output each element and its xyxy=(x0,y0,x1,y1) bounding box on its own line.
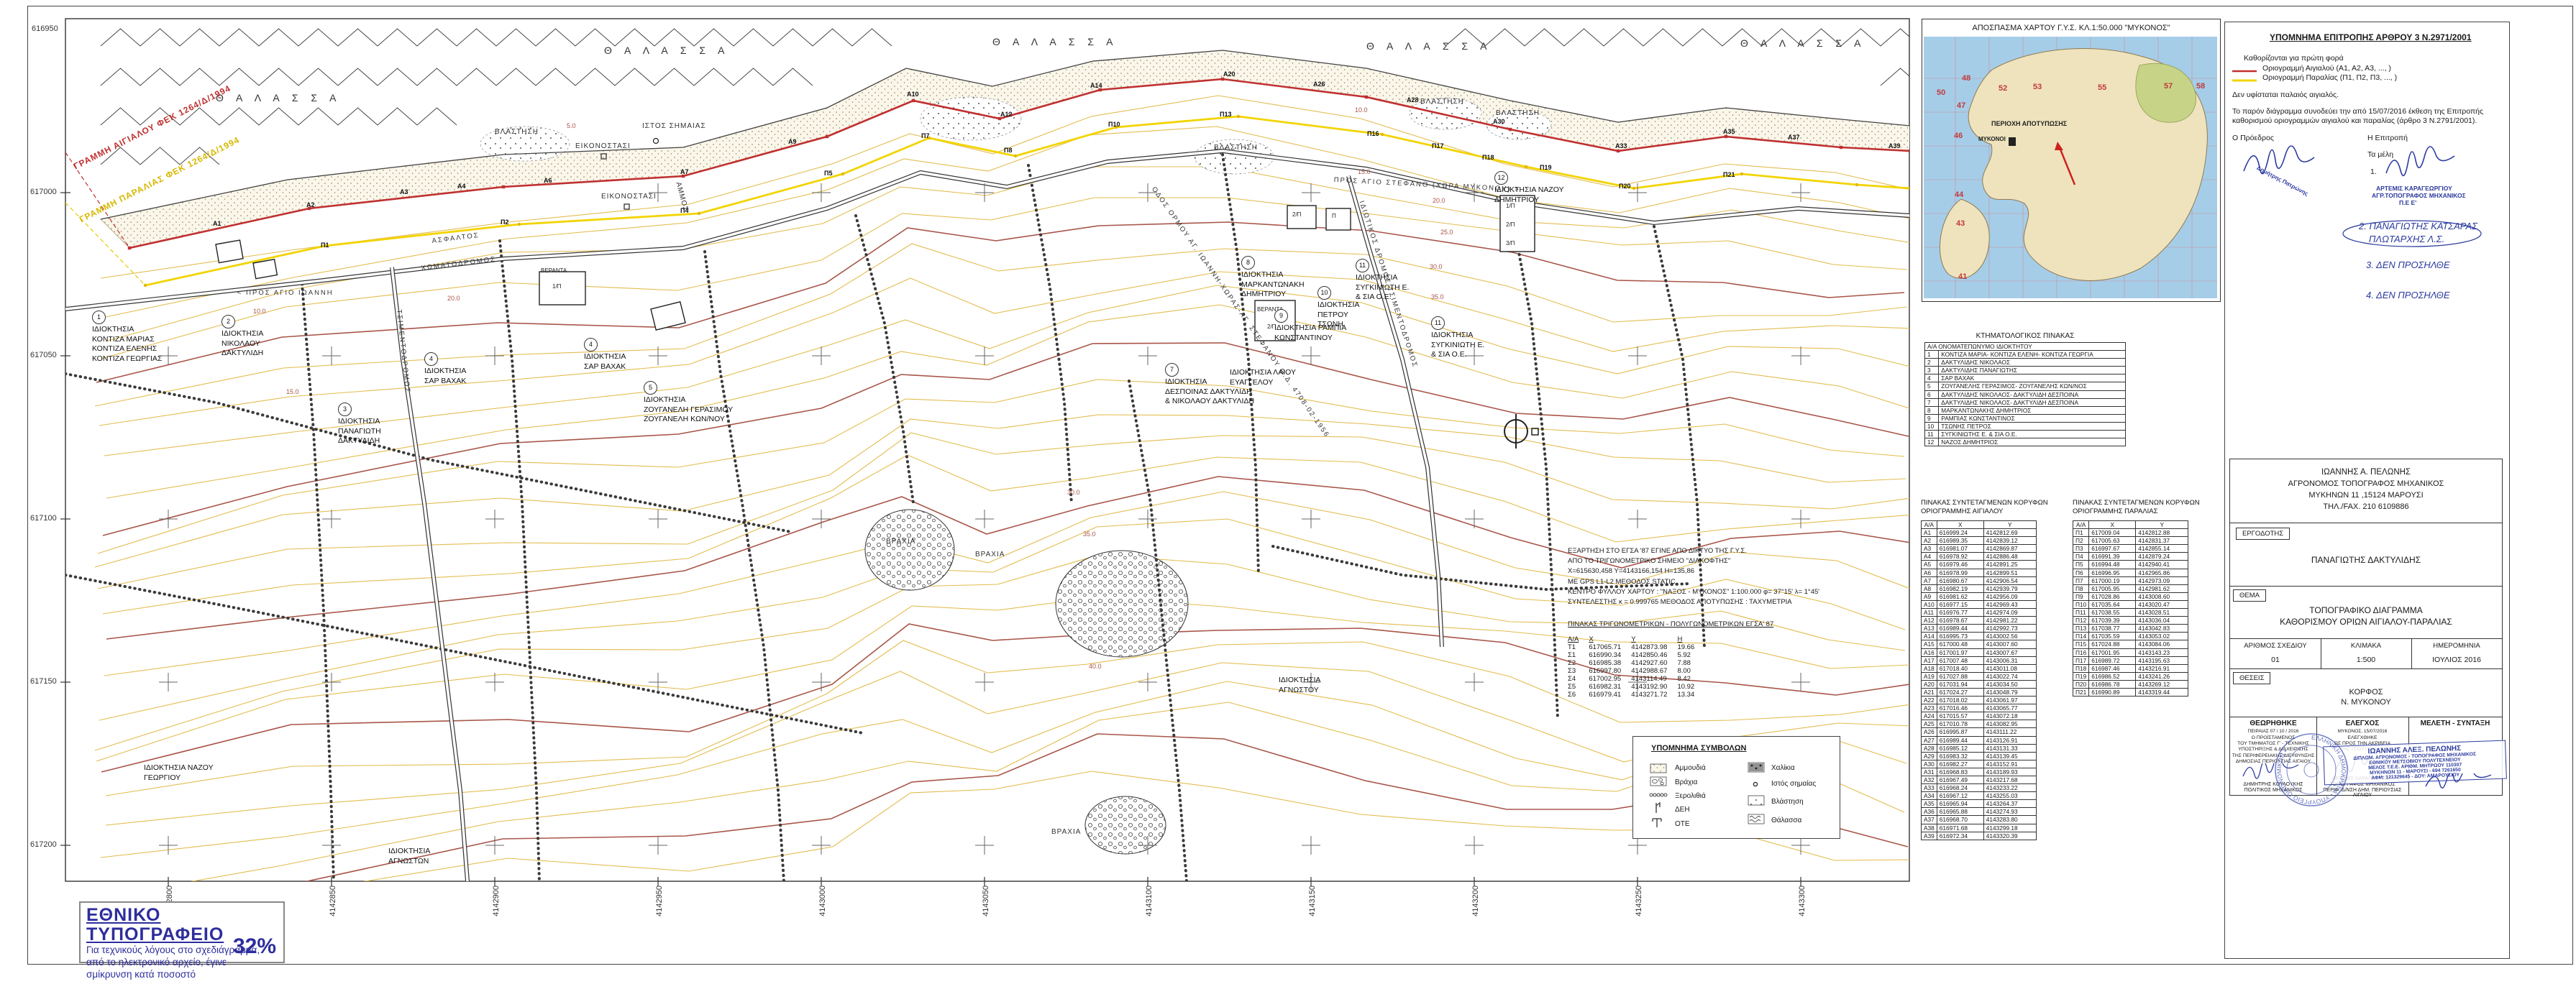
table-cell: 616997.80 xyxy=(1589,667,1631,675)
table-row: Π1617009.044142812.88 xyxy=(2073,529,2188,537)
table-cell: Α29 xyxy=(1922,752,1937,760)
table-cell: 616978.67 xyxy=(1937,617,1983,625)
table-row: Π7617000.194142973.09 xyxy=(2073,576,2188,584)
legend-item-vegetation: Βλάστηση xyxy=(1771,798,1804,806)
table-cell: 9 xyxy=(1925,414,1939,422)
table-cell: 4142886.48 xyxy=(1983,553,2036,561)
drawing-no: 01 xyxy=(2230,656,2321,664)
table-cell: Σ5 xyxy=(1568,683,1589,691)
table-row: Α15617000.484143007.60 xyxy=(1922,640,2037,648)
inset-grid-number: 43 xyxy=(1956,219,1965,228)
table-cell: 13.34 xyxy=(1677,691,1704,699)
table-row: Α28616985.124143131.33 xyxy=(1922,744,2037,752)
table-row: Α3616981.074142869.87 xyxy=(1922,545,2037,553)
table-cell: 617024.27 xyxy=(1937,688,1983,696)
table-row: Π9617028.864143008.60 xyxy=(2073,592,2188,600)
table-cell: 616989.44 xyxy=(1937,736,1983,744)
table-cell: 4142973.09 xyxy=(2136,576,2188,584)
table-cell: Α34 xyxy=(1922,792,1937,800)
table-row: 8ΜΑΡΚΑΝΤΩΝΑΚΗΣ ΔΗΜΗΤΡΙΟΣ xyxy=(1925,406,2126,414)
survey-note: ΕΞΑΡΤΗΣΗ ΣΤΟ ΕΓΣΑ '87 ΕΓΙΝΕ ΑΠΟ ΔΙΚΤΥΟ Τ… xyxy=(1568,546,1819,607)
table-row: Α26616995.874143111.22 xyxy=(1922,728,2037,736)
table-cell: Α14 xyxy=(1922,633,1937,640)
table-cell: 617024.88 xyxy=(2089,640,2136,648)
table-cell: Α11 xyxy=(1922,609,1937,617)
table-cell: Π18 xyxy=(2073,664,2089,672)
table-row: Π18616987.464143216.91 xyxy=(2073,664,2188,672)
table-cell: Α28 xyxy=(1922,744,1937,752)
table-cell: 11 xyxy=(1925,431,1939,438)
table-cell: Π16 xyxy=(2073,648,2089,656)
table-cell: 4142879.24 xyxy=(2136,553,2188,561)
table-cell: Α27 xyxy=(1922,736,1937,744)
table-cell: 4142899.51 xyxy=(1983,569,2036,576)
scale-label: ΚΛΙΜΑΚΑ xyxy=(2321,642,2411,650)
table-row: Π16617001.954143143.23 xyxy=(2073,648,2188,656)
table-cell: 617000.48 xyxy=(1937,640,1983,648)
table-cell: 617038.55 xyxy=(2089,609,2136,617)
table-cell: 616972.34 xyxy=(1937,832,1983,840)
table-cell: 616971.68 xyxy=(1937,824,1983,832)
table-cell: Π20 xyxy=(2073,680,2089,688)
table-cell: 617015.57 xyxy=(1937,712,1983,720)
table-cell: 4142850.46 xyxy=(1631,651,1677,659)
flag-pole-icon xyxy=(654,139,659,144)
table-cell: Π12 xyxy=(2073,617,2089,625)
table-cell: 4143299.18 xyxy=(1983,824,2036,832)
table-cell: 616968.24 xyxy=(1937,784,1983,792)
table-cell: 4142855.14 xyxy=(2136,545,2188,553)
table-cell: Α39 xyxy=(1922,832,1937,840)
table-cell: 4143143.23 xyxy=(2136,648,2188,656)
frame-coordinate: 4143000 xyxy=(818,886,827,916)
table-row: Α10616977.154142969.43 xyxy=(1922,600,2037,608)
table-cell: 616978.92 xyxy=(1937,553,1983,561)
table-cell: 616983.32 xyxy=(1937,752,1983,760)
topographic-diagram-sheet: { "map": { "corner_coord": "616950", "le… xyxy=(0,0,2576,1002)
table-row: Α31616968.834143189.93 xyxy=(1922,768,2037,776)
table-cell: 4143028.51 xyxy=(2136,609,2188,617)
member1-stamp: ΑΡΤΕΜΙΣ ΚΑΡΑΓΕΩΡΓΙΟΥ xyxy=(2376,185,2452,192)
table-cell: 4143320.39 xyxy=(1983,832,2036,840)
inset-grid-number: 52 xyxy=(1999,84,2007,93)
paralia-coordinates-table: Α/Α Χ Υ Π1617009.044142812.88Π2617005.63… xyxy=(2073,520,2188,697)
table-row: Α6616978.994142899.51 xyxy=(1922,569,2037,576)
table-cell: 4143002.56 xyxy=(1983,633,2036,640)
table-cell: 617028.86 xyxy=(2089,592,2136,600)
table-cell: 616999.24 xyxy=(1937,529,1983,537)
table-cell: Α4 xyxy=(1922,553,1937,561)
table-cell: 617038.77 xyxy=(2089,625,2136,633)
table-cell: 4143034.50 xyxy=(1983,680,2036,688)
table-row: 5ΖΟΥΓΑΝΕΛΗΣ ΓΕΡΑΣΙΜΟΣ- ΖΟΥΓΑΝΕΛΗΣ ΚΩΝ/ΝΟ… xyxy=(1925,382,2126,390)
table-cell: 4143264.37 xyxy=(1983,800,2036,808)
table-row: Α16617001.974143007.67 xyxy=(1922,648,2037,656)
table-cell: 616997.67 xyxy=(2089,545,2136,553)
table-cell: 4142906.54 xyxy=(1983,576,2036,584)
table-row: Α23617016.464143065.77 xyxy=(1922,704,2037,712)
survey-note-line: ΕΞΑΡΤΗΣΗ ΣΤΟ ΕΓΣΑ '87 ΕΓΙΝΕ ΑΠΟ ΔΙΚΤΥΟ Τ… xyxy=(1568,546,1819,556)
table-cell: 4143007.60 xyxy=(1983,640,2036,648)
column-header: Η xyxy=(1677,635,1704,643)
client-label: ΕΡΓΟΔΟΤΗΣ xyxy=(2236,528,2290,540)
table-cell: 616986.52 xyxy=(2089,672,2136,680)
table-cell: Π10 xyxy=(2073,600,2089,608)
table-cell: 616989.44 xyxy=(1937,625,1983,633)
survey-note-line: ΣΥΝΤΕΛΕΣΤΗΣ κ = 0.999765 ΜΕΘΟΔΟΣ ΑΠΟΤΥΠΩ… xyxy=(1568,597,1819,607)
table-row: Α24617015.574143072.18 xyxy=(1922,712,2037,720)
table-cell: Α13 xyxy=(1922,625,1937,633)
table-cell: Π14 xyxy=(2073,633,2089,640)
column-header: Α/Α xyxy=(2073,521,2089,529)
table-cell: 4143065.77 xyxy=(1983,704,2036,712)
frame-coordinate: 617200 xyxy=(30,840,57,849)
table-cell: 616967.12 xyxy=(1937,792,1983,800)
table-cell: 616965.88 xyxy=(1937,808,1983,816)
table-row: Α35616965.944143264.37 xyxy=(1922,800,2037,808)
column-header: Υ xyxy=(1983,521,2036,529)
table-cell: 4142956.09 xyxy=(1983,592,2036,600)
location-line1: ΚΟΡΦΟΣ xyxy=(2230,688,2502,697)
table-row: 9ΡΑΜΠΙΑΣ ΚΩΝΣΤΑΝΤΙΝΟΣ xyxy=(1925,414,2126,422)
table-row: Α9616981.624142956.09 xyxy=(1922,592,2037,600)
table-cell: 4143048.79 xyxy=(1983,688,2036,696)
north-symbol-icon xyxy=(1504,414,1538,449)
table-cell: Α20 xyxy=(1922,680,1937,688)
committee-legend-yellow: Οριογραμμή Παραλίας (Π1, Π2, Π3, ..., ) xyxy=(2262,73,2397,82)
table-cell: Α38 xyxy=(1922,824,1937,832)
frame-coordinate: 4143250 xyxy=(1635,886,1643,916)
table-cell: ΝΑΖΟΣ ΔΗΜΗΤΡΙΟΣ xyxy=(1939,438,2126,446)
table-cell: 4143111.22 xyxy=(1983,728,2036,736)
inset-grid-number: 55 xyxy=(2098,83,2106,92)
table-cell: Π1 xyxy=(2073,529,2089,537)
table-cell: 616982.19 xyxy=(1937,584,1983,592)
table-cell: 7.88 xyxy=(1677,659,1704,667)
table-cell: 4142940.41 xyxy=(2136,561,2188,569)
table-row: Α37616968.704143283.80 xyxy=(1922,816,2037,824)
table-cell: 4143139.45 xyxy=(1983,752,2036,760)
table-row: Π4616991.394142879.24 xyxy=(2073,553,2188,561)
firm-profession: ΑΓΡΟΝΟΜΟΣ ΤΟΠΟΓΡΑΦΟΣ ΜΗΧΑΝΙΚΟΣ xyxy=(2230,479,2502,488)
table-cell: 616968.83 xyxy=(1937,768,1983,776)
table-header-row: Α/Α Χ Υ xyxy=(1922,521,2037,529)
table-cell: 617005.95 xyxy=(2089,584,2136,592)
member1-stamp-grade: Π.Ε Ε' xyxy=(2399,199,2416,206)
table-cell: ΔΑΚΤΥΛΙΔΗΣ ΝΙΚΟΛΑΟΣ xyxy=(1939,359,2126,367)
cadastral-table-title: ΚΤΗΜΑΤΟΛΟΓΙΚΟΣ ΠΙΝΑΚΑΣ xyxy=(1924,332,2126,340)
table-cell: 4143131.33 xyxy=(1983,744,2036,752)
date-label: ΗΜΕΡΟΜΗΝΙΑ xyxy=(2411,642,2502,650)
table-cell: 4142992.73 xyxy=(1983,625,2036,633)
frame-coordinate: 4143200 xyxy=(1471,886,1480,916)
table-cell: 4143217.68 xyxy=(1983,776,2036,784)
table-cell: 616982.27 xyxy=(1937,760,1983,768)
table-row: Π5616994.484142940.41 xyxy=(2073,561,2188,569)
table-cell: Α18 xyxy=(1922,664,1937,672)
table-cell: 4142939.79 xyxy=(1983,584,2036,592)
table-row: Π21616990.894143319.44 xyxy=(2073,688,2188,696)
table-cell: 8.42 xyxy=(1677,675,1704,683)
table-cell: 4 xyxy=(1925,374,1939,382)
table-cell: 616982.31 xyxy=(1589,683,1631,691)
table-cell: 12 xyxy=(1925,438,1939,446)
table-cell: 10.92 xyxy=(1677,683,1704,691)
column-header: Χ xyxy=(2089,521,2136,529)
trig-table-title: ΠΙΝΑΚΑΣ ΤΡΙΓΩΝΟΜΕΤΡΙΚΩΝ - ΠΟΛΥΓΩΝΟΜΕΤΡΙΚ… xyxy=(1568,620,1773,630)
trig-table: Α/Α Χ Υ Η Τ1617065.714142873.9819.66Σ161… xyxy=(1568,635,1704,699)
locations-label: ΘΕΣΕΙΣ xyxy=(2233,672,2270,684)
table-cell: 617018.02 xyxy=(1937,697,1983,704)
table-cell: Α10 xyxy=(1922,600,1937,608)
legend-item-drystone: Ξερολιθιά xyxy=(1675,792,1706,800)
table-row: Σ1616990.344142850.465.92 xyxy=(1568,651,1704,659)
table-cell: 4143233.22 xyxy=(1983,784,2036,792)
table-cell: 4143036.04 xyxy=(2136,617,2188,625)
table-cell: Π11 xyxy=(2073,609,2089,617)
subject-line2: ΚΑΘΟΡΙΣΜΟΥ ΟΡΙΩΝ ΑΙΓΙΑΛΟΥ-ΠΑΡΑΛΙΑΣ xyxy=(2230,617,2502,627)
table-cell: 616965.94 xyxy=(1937,800,1983,808)
table-cell: 4142812.88 xyxy=(2136,529,2188,537)
table-cell: 4143241.26 xyxy=(2136,672,2188,680)
table-cell: 617018.40 xyxy=(1937,664,1983,672)
table-row: Α7616980.674142906.54 xyxy=(1922,576,2037,584)
table-cell: 4143042.83 xyxy=(2136,625,2188,633)
table-row: Α38616971.684143299.18 xyxy=(1922,824,2037,832)
table-cell: 19.66 xyxy=(1677,643,1704,651)
table-row: 6ΔΑΚΤΥΛΙΔΗΣ ΝΙΚΟΛΑΟΣ- ΔΑΚΤΥΛΙΔΗ ΔΕΣΠΟΙΝΑ xyxy=(1925,390,2126,398)
aigialos-table-title: ΠΙΝΑΚΑΣ ΣΥΝΤΕΤΑΓΜΕΝΩΝ ΚΟΡΥΦΩΝ xyxy=(1921,499,2048,507)
frame-coordinate: 617150 xyxy=(30,677,57,686)
member2-signature xyxy=(2340,218,2484,249)
table-header-row: Α/Α Χ Υ Η xyxy=(1568,635,1704,643)
drawing-no-label: ΑΡΙΘΜΟΣ ΣΧΕΔΙΟΥ xyxy=(2230,642,2321,650)
table-cell: 4143283.80 xyxy=(1983,816,2036,824)
table-row: Α36616965.884143274.93 xyxy=(1922,808,2037,816)
table-cell: 4143319.44 xyxy=(2136,688,2188,696)
table-cell: Π8 xyxy=(2073,584,2089,592)
table-cell: 10 xyxy=(1925,422,1939,430)
table-row: Π13617038.774143042.83 xyxy=(2073,625,2188,633)
committee-note2: Το παρόν διάγραμμα συνοδεύει την από 15/… xyxy=(2232,107,2483,116)
checked-label: ΕΛΕΓΧΟΣ xyxy=(2316,720,2408,727)
table-cell: 1 xyxy=(1925,351,1939,359)
firm-name: ΙΩΑΝΝΗΣ Α. ΠΕΛΩΝΗΣ xyxy=(2230,468,2502,477)
inset-grid-number: 47 xyxy=(1957,101,1965,110)
table-cell: 4143192.90 xyxy=(1631,683,1677,691)
member1-signature xyxy=(2382,144,2461,182)
table-cell: 4142873.98 xyxy=(1631,643,1677,651)
table-row: Α2616989.354142839.12 xyxy=(1922,537,2037,545)
legend-item-sand: Αμμουδιά xyxy=(1675,764,1706,772)
frame-coordinate: 4143100 xyxy=(1145,886,1154,916)
frame-coordinate: 617100 xyxy=(30,514,57,523)
table-cell: 4143084.06 xyxy=(2136,640,2188,648)
table-cell: 617000.19 xyxy=(2089,576,2136,584)
table-row: Α20617031.944143034.50 xyxy=(1922,680,2037,688)
table-cell: 5 xyxy=(1925,382,1939,390)
table-cell: 616981.07 xyxy=(1937,545,1983,553)
table-row: Π19616986.524143241.26 xyxy=(2073,672,2188,680)
inset-grid-number: 41 xyxy=(1958,272,1967,281)
inset-grid-number: 46 xyxy=(1954,132,1963,140)
table-row: 2ΔΑΚΤΥΛΙΔΗΣ ΝΙΚΟΛΑΟΣ xyxy=(1925,359,2126,367)
table-row: 7ΔΑΚΤΥΛΙΔΗΣ ΝΙΚΟΛΑΟΣ- ΔΑΚΤΥΛΙΔΗ ΔΕΣΠΟΙΝΑ xyxy=(1925,398,2126,406)
table-cell: 616981.62 xyxy=(1937,592,1983,600)
table-cell: Α25 xyxy=(1922,720,1937,728)
inset-grid-number: 57 xyxy=(2164,82,2173,91)
table-cell: Α19 xyxy=(1922,672,1937,680)
table-row: Π14617035.594143053.02 xyxy=(2073,633,2188,640)
table-row: Α22617018.024143061.97 xyxy=(1922,697,2037,704)
table-cell: Α9 xyxy=(1922,592,1937,600)
table-cell: 8.00 xyxy=(1677,667,1704,675)
table-row: 10ΤΣΩΝΗΣ ΠΕΤΡΟΣ xyxy=(1925,422,2126,430)
table-cell: 6 xyxy=(1925,390,1939,398)
table-cell: 4142812.69 xyxy=(1983,529,2036,537)
table-cell: Π5 xyxy=(2073,561,2089,569)
table-cell: 4142974.09 xyxy=(1983,609,2036,617)
grid-crosses xyxy=(159,183,1810,855)
client-name: ΠΑΝΑΓΙΩΤΗΣ ΔΑΚΤΥΛΙΔΗΣ xyxy=(2230,555,2502,565)
column-header: Χ xyxy=(1589,635,1631,643)
inset-town-label: ΜΥΚΟΝΟΙ xyxy=(1978,136,2006,142)
title-block: ΙΩΑΝΝΗΣ Α. ΠΕΛΩΝΗΣ ΑΓΡΟΝΟΜΟΣ ΤΟΠΟΓΡΑΦΟΣ … xyxy=(2229,459,2503,796)
table-row: Α12616978.674142981.22 xyxy=(1922,617,2037,625)
frame-coordinate: 616950 xyxy=(32,24,58,33)
table-cell: 7 xyxy=(1925,398,1939,406)
table-cell: Α2 xyxy=(1922,537,1937,545)
table-cell: 616995.73 xyxy=(1937,633,1983,640)
table-cell: 3 xyxy=(1925,367,1939,374)
table-cell: 616979.41 xyxy=(1589,691,1631,699)
table-cell: 617031.94 xyxy=(1937,680,1983,688)
table-cell: Α36 xyxy=(1922,808,1937,816)
table-row: Α13616989.444142992.73 xyxy=(1922,625,2037,633)
table-row: Τ1617065.714142873.9819.66 xyxy=(1568,643,1704,651)
table-cell: 617027.88 xyxy=(1937,672,1983,680)
table-cell: Α16 xyxy=(1922,648,1937,656)
member3-handwritten: 3. ΔΕΝ ΠΡΟΣΗΛΘΕ xyxy=(2366,259,2450,270)
table-cell: 4143022.74 xyxy=(1983,672,2036,680)
table-cell: Α32 xyxy=(1922,776,1937,784)
table-row: Π17616989.724143195.63 xyxy=(2073,656,2188,664)
table-row: 4ΣΑΡ ΒΑΧΑΚ xyxy=(1925,374,2126,382)
table-cell: ΤΣΩΝΗΣ ΠΕΤΡΟΣ xyxy=(1939,422,2126,430)
table-cell: ΚΟΝΤΙΖΑ ΜΑΡΙΑ- ΚΟΝΤΙΖΑ ΕΛΕΝΗ- ΚΟΝΤΙΖΑ ΓΕ… xyxy=(1939,351,2126,359)
frame-coordinate: 4143300 xyxy=(1798,886,1807,916)
table-cell: 617002.95 xyxy=(1589,675,1631,683)
table-cell: Α7 xyxy=(1922,576,1937,584)
frame-coordinate: 617050 xyxy=(30,351,57,359)
table-cell: Α26 xyxy=(1922,728,1937,736)
paralia-table-subtitle: ΟΡΙΟΓΡΑΜΜΗΣ ΠΑΡΑΛΙΑΣ xyxy=(2073,507,2158,516)
frame-coordinate: 4142850 xyxy=(329,886,337,916)
legend-item-flagpole: Ιστός σημαίας xyxy=(1771,780,1816,788)
table-cell: 616985.38 xyxy=(1589,659,1631,667)
table-cell: 617035.59 xyxy=(2089,633,2136,640)
table-cell: Π9 xyxy=(2073,592,2089,600)
table-cell: 617009.04 xyxy=(2089,529,2136,537)
table-cell: 616979.46 xyxy=(1937,561,1983,569)
column-header: Χ xyxy=(1937,521,1983,529)
table-cell: 4143152.91 xyxy=(1983,760,2036,768)
table-cell: 4143082.95 xyxy=(1983,720,2036,728)
table-row: Α19617027.884143022.74 xyxy=(1922,672,2037,680)
table-row: Α33616968.244143233.22 xyxy=(1922,784,2037,792)
table-cell: 8 xyxy=(1925,406,1939,414)
inset-map: ΑΠΟΣΠΑΣΜΑ ΧΑΡΤΟΥ Γ.Υ.Σ. ΚΛ.1:50.000 "ΜΥΚ… xyxy=(1922,19,2221,302)
table-cell: 4143008.60 xyxy=(2136,592,2188,600)
symbol-legend: ΥΠΟΜΝΗΜΑ ΣΥΜΒΟΛΩΝ Αμμουδιά Βράχια Ξερολι… xyxy=(1632,736,1840,839)
table-cell: Σ4 xyxy=(1568,675,1589,683)
engineer-signature xyxy=(2423,773,2495,792)
table-cell: 616980.67 xyxy=(1937,576,1983,584)
table-row: 11ΣΥΓΚΙΝΙΩΤΗΣ Ε. & ΣΙΑ Ο.Ε. xyxy=(1925,431,2126,438)
table-row: Α25617010.784143082.95 xyxy=(1922,720,2037,728)
column-header: Α/Α xyxy=(1922,521,1937,529)
table-cell: 4143053.02 xyxy=(2136,633,2188,640)
table-row: Π3616997.674142855.14 xyxy=(2073,545,2188,553)
table-cell: Π7 xyxy=(2073,576,2089,584)
table-cell: 4142891.25 xyxy=(1983,561,2036,569)
national-printing-office-stamp: ΕΘΝΙΚΟ ΤΥΠΟΓΡΑΦΕΙΟ Για τεχνικούς λόγους … xyxy=(79,901,285,963)
inset-grid-number: 58 xyxy=(2196,82,2205,91)
committee-label: Η Επιτροπή xyxy=(2367,134,2408,142)
firm-phone: ΤΗΛ./FAX. 210 6109886 xyxy=(2230,502,2502,511)
table-row: 1ΚΟΝΤΙΖΑ ΜΑΡΙΑ- ΚΟΝΤΙΖΑ ΕΛΕΝΗ- ΚΟΝΤΙΖΑ Γ… xyxy=(1925,351,2126,359)
approved-label: ΘΕΩΡΗΘΗΚΕ xyxy=(2230,720,2316,727)
table-cell: ΣΥΓΚΙΝΙΩΤΗΣ Ε. & ΣΙΑ Ο.Ε. xyxy=(1939,431,2126,438)
table-row: Π2617005.634142831.37 xyxy=(2073,537,2188,545)
table-cell: 616990.34 xyxy=(1589,651,1631,659)
table-cell: 4143126.91 xyxy=(1983,736,2036,744)
frame-coordinate: 617000 xyxy=(30,188,57,196)
table-row: Α5616979.464142891.25 xyxy=(1922,561,2037,569)
legend-item-gravel: Χαλίκια xyxy=(1771,764,1795,772)
aigialos-coordinates-table: Α/Α Χ Υ Α1616999.244142812.69Α2616989.35… xyxy=(1921,520,2037,840)
table-cell: Α17 xyxy=(1922,656,1937,664)
committee-intro: Καθορίζονται για πρώτη φορά xyxy=(2244,54,2344,63)
committee-legend-red: Οριογραμμή Αιγιαλού (Α1, Α2, Α3, ..., ) xyxy=(2262,64,2391,73)
survey-note-line: ΑΠΟ ΤΟ ΤΡΙΓΩΝΟΜΕΤΡΙΚΟ ΣΗΜΕΙΟ "ΔΙΑΚΟΦΤΗΣ" xyxy=(1568,556,1819,566)
legend-item-deh: ΔΕΗ xyxy=(1675,806,1690,814)
table-row: Α11616976.774142974.09 xyxy=(1922,609,2037,617)
table-cell: 4143061.97 xyxy=(1983,697,2036,704)
table-cell: Π15 xyxy=(2073,640,2089,648)
inset-grid-number: 48 xyxy=(1962,74,1970,83)
table-cell: Σ2 xyxy=(1568,659,1589,667)
table-cell: 4143114.49 xyxy=(1631,675,1677,683)
table-cell: 4143011.08 xyxy=(1983,664,2036,672)
table-cell: 617001.97 xyxy=(1937,648,1983,656)
committee-note1: Δεν υφίσταται παλαιός αιγιαλός. xyxy=(2232,91,2339,99)
table-cell: Σ6 xyxy=(1568,691,1589,699)
shrine-icon xyxy=(624,204,629,209)
table-header-row: Α/Α ΟΝΟΜΑΤΕΠΩΝΥΜΟ ΙΔΙΟΚΤΗΤΟΥ xyxy=(1925,343,2126,351)
table-cell: 616989.72 xyxy=(2089,656,2136,664)
table-cell: Α24 xyxy=(1922,712,1937,720)
table-cell: 4142869.87 xyxy=(1983,545,2036,553)
member1-number: 1. xyxy=(2370,167,2377,176)
table-row: Π8617005.954142981.62 xyxy=(2073,584,2188,592)
table-row: 12ΝΑΖΟΣ ΔΗΜΗΤΡΙΟΣ xyxy=(1925,438,2126,446)
frame-coordinate: 4143050 xyxy=(982,886,990,916)
column-header: Α/Α ΟΝΟΜΑΤΕΠΩΝΥΜΟ ΙΔΙΟΚΤΗΤΟΥ xyxy=(1925,343,2126,351)
table-cell: 617016.46 xyxy=(1937,704,1983,712)
table-row: Α34616967.124143255.03 xyxy=(1922,792,2037,800)
table-cell: 616989.35 xyxy=(1937,537,1983,545)
